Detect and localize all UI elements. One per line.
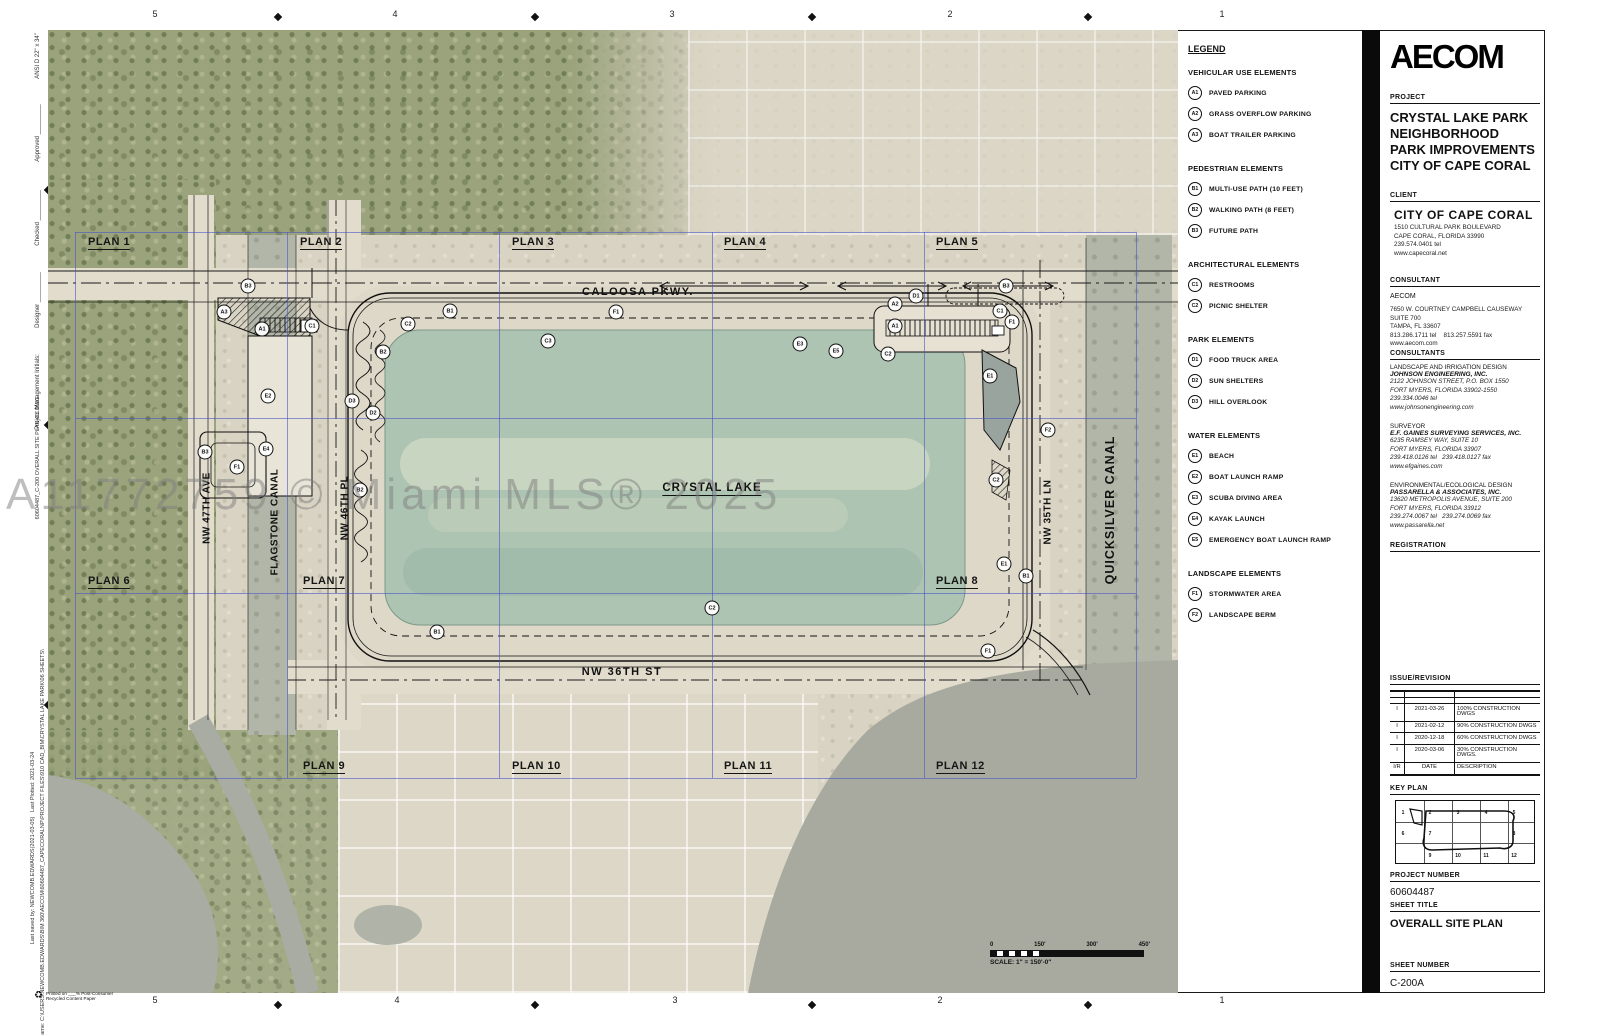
consultant-block: LANDSCAPE AND IRRIGATION DESIGN JOHNSON … (1390, 364, 1540, 412)
legend-panel: LEGEND VEHICULAR USE ELEMENTS A1 PAVED P… (1188, 44, 1356, 644)
consultants-label: CONSULTANTS (1390, 350, 1540, 360)
element-marker: F1 (1005, 315, 1020, 330)
legend-item: E3 SCUBA DIVING AREA (1188, 491, 1356, 505)
element-marker: B2 (376, 345, 391, 360)
element-marker: F1 (981, 644, 996, 659)
legend-item: D3 HILL OVERLOOK (1188, 395, 1356, 409)
margin-annotation: Last saved by: NEWCOMB.EDWARDS(2021-03-0… (30, 752, 36, 944)
legend-item: F2 LANDSCAPE BERM (1188, 608, 1356, 622)
plan-label: PLAN 6 (88, 575, 130, 589)
project-number-label: PROJECT NUMBER (1390, 872, 1540, 882)
legend-code-badge: A2 (1188, 107, 1202, 121)
street-label: QUICKSILVER CANAL (1103, 436, 1117, 585)
element-marker: F2 (1041, 423, 1056, 438)
sheet-number: C-200A (1390, 974, 1540, 989)
element-marker: D2 (366, 406, 381, 421)
element-marker: F1 (609, 305, 624, 320)
legend-code-badge: E3 (1188, 491, 1202, 505)
legend-item: E1 BEACH (1188, 449, 1356, 463)
legend-item: D1 FOOD TRUCK AREA (1188, 353, 1356, 367)
element-marker: B3 (198, 445, 213, 460)
legend-section-park: PARK ELEMENTS D1 FOOD TRUCK AREA D2 SUN … (1188, 335, 1356, 409)
element-marker: C2 (705, 601, 720, 616)
legend-item: D2 SUN SHELTERS (1188, 374, 1356, 388)
client-label: CLIENT (1390, 192, 1540, 202)
element-marker: A2 (888, 297, 903, 312)
scale-tick-label: 450' (1139, 942, 1150, 948)
element-marker: C1 (305, 319, 320, 334)
plan-label: PLAN 3 (512, 236, 554, 250)
key-plan-map: 123456789101112 (1395, 800, 1535, 864)
aecom-logo: AECOM (1390, 38, 1503, 75)
plan-label: PLAN 8 (936, 575, 978, 589)
element-marker: E1 (997, 557, 1012, 572)
element-marker: C2 (881, 347, 896, 362)
legend-item: B1 MULTI-USE PATH (10 FEET) (1188, 182, 1356, 196)
element-marker: B1 (430, 625, 445, 640)
legend-code-badge: E5 (1188, 533, 1202, 547)
element-marker: C3 (541, 334, 556, 349)
margin-annotation: Approved _________ (35, 104, 41, 161)
keyplan-number: 8 (1513, 831, 1516, 837)
consultant-address: 7650 W. COURTNEY CAMPBELL CAUSEWAY SUITE… (1390, 306, 1540, 349)
ruler-number: 1 (1219, 995, 1224, 1005)
legend-code-badge: B3 (1188, 224, 1202, 238)
legend-code-badge: D3 (1188, 395, 1202, 409)
street-label: NW 36TH ST (582, 666, 662, 678)
legend-code-badge: F1 (1188, 587, 1202, 601)
consultants-list: LANDSCAPE AND IRRIGATION DESIGN JOHNSON … (1390, 364, 1540, 541)
consultant-block: SURVEYOR E.F. GAINES SURVEYING SERVICES,… (1390, 423, 1540, 471)
plan-label: PLAN 12 (936, 760, 985, 774)
consultant-label: CONSULTANT (1390, 277, 1540, 287)
drawing-sheet: { "watermark": "A11772759 © Miami MLS® 2… (0, 0, 1600, 1035)
keyplan-number: 11 (1483, 853, 1488, 859)
legend-item: E4 KAYAK LAUNCH (1188, 512, 1356, 526)
legend-item: F1 STORMWATER AREA (1188, 587, 1356, 601)
project-number: 60604487 (1390, 883, 1540, 898)
revision-row: I 2021-02-12 90% CONSTRUCTION DWGS (1390, 722, 1540, 734)
mls-watermark: A11772759 © Miami MLS® 2025 (6, 470, 782, 520)
keyplan-number: 6 (1402, 831, 1405, 837)
titleblock-divider-bar (1362, 30, 1380, 993)
sheet-number-label: SHEET NUMBER (1390, 962, 1540, 972)
ruler-number: 4 (394, 995, 399, 1005)
plan-label: PLAN 5 (936, 236, 978, 250)
legend-code-badge: E4 (1188, 512, 1202, 526)
plan-label: PLAN 2 (300, 236, 342, 250)
street-label: CALOOSA PKWY. (582, 286, 694, 298)
legend-item: A3 BOAT TRAILER PARKING (1188, 128, 1356, 142)
keyplan-number: 1 (1402, 810, 1405, 816)
legend-code-badge: D1 (1188, 353, 1202, 367)
project-label: PROJECT (1390, 94, 1540, 104)
recycle-icon: ♻ (34, 990, 43, 1001)
sheet-title-label: SHEET TITLE (1390, 902, 1540, 912)
margin-annotation: Filename: C:\USERS\NEWCOMB.EDWARDS\BIM 3… (40, 649, 46, 1035)
legend-section-water: WATER ELEMENTS E1 BEACH E2 BOAT LAUNCH R… (1188, 431, 1356, 547)
legend-section-pedestrian: PEDESTRIAN ELEMENTS B1 MULTI-USE PATH (1… (1188, 164, 1356, 238)
element-marker: E2 (261, 389, 276, 404)
plan-label: PLAN 1 (88, 236, 130, 250)
element-marker: B1 (1019, 569, 1034, 584)
keyplan-number: 9 (1429, 853, 1432, 859)
legend-item: E5 EMERGENCY BOAT LAUNCH RAMP (1188, 533, 1356, 547)
keyplan-number: 2 (1429, 810, 1432, 816)
plan-label: PLAN 4 (724, 236, 766, 250)
legend-code-badge: A1 (1188, 86, 1202, 100)
key-plan-label: KEY PLAN (1390, 785, 1540, 795)
ruler-number: 3 (672, 995, 677, 1005)
plan-label: PLAN 9 (303, 760, 345, 774)
element-marker: E5 (829, 344, 844, 359)
ruler-number: 5 (152, 995, 157, 1005)
ruler-number: 2 (937, 995, 942, 1005)
element-marker: A1 (888, 319, 903, 334)
street-label: NW 35TH LN (1043, 480, 1054, 545)
title-block: AECOM PROJECT CRYSTAL LAKE PARK NEIGHBOR… (1390, 30, 1542, 993)
legend-item: A1 PAVED PARKING (1188, 86, 1356, 100)
plan-label: PLAN 10 (512, 760, 561, 774)
revision-table: I 2021-03-26 100% CONSTRUCTION DWGS I 20… (1390, 690, 1540, 776)
legend-item: B2 WALKING PATH (8 FEET) (1188, 203, 1356, 217)
registration-label: REGISTRATION (1390, 542, 1540, 552)
element-marker: B3 (241, 279, 256, 294)
keyplan-number: 5 (1513, 810, 1516, 816)
keyplan-number: 7 (1429, 831, 1432, 837)
consultant-block: ENVIRONMENTAL/ECOLOGICAL DESIGN PASSAREL… (1390, 482, 1540, 530)
client-name: CITY OF CAPE CORAL (1390, 208, 1544, 222)
ruler-number: 1 (1219, 9, 1224, 19)
legend-code-badge: D2 (1188, 374, 1202, 388)
legend-code-badge: A3 (1188, 128, 1202, 142)
legend-code-badge: F2 (1188, 608, 1202, 622)
consultant-name: AECOM (1390, 293, 1540, 300)
margin-annotation: Checked _________ (35, 190, 41, 245)
scale-tick-label: 300' (1086, 942, 1097, 948)
legend-item: C2 PICNIC SHELTER (1188, 299, 1356, 313)
sheet-title: OVERALL SITE PLAN (1390, 914, 1540, 930)
ruler-number: 3 (669, 9, 674, 19)
ruler-number: 4 (392, 9, 397, 19)
legend-item: A2 GRASS OVERFLOW PARKING (1188, 107, 1356, 121)
legend-code-badge: C1 (1188, 278, 1202, 292)
project-title: CRYSTAL LAKE PARK NEIGHBORHOOD PARK IMPR… (1390, 110, 1540, 173)
legend-code-badge: B2 (1188, 203, 1202, 217)
element-marker: E1 (983, 369, 998, 384)
margin-annotation: Designer _________ (35, 272, 41, 328)
legend-code-badge: B1 (1188, 182, 1202, 196)
issue-revision-label: ISSUE/REVISION (1390, 675, 1540, 685)
plan-label: PLAN 7 (303, 575, 345, 589)
ruler-number: 2 (947, 9, 952, 19)
keyplan-number: 4 (1485, 810, 1488, 816)
element-marker: E4 (259, 442, 274, 457)
scale-bar-graphic (990, 950, 1144, 957)
revision-row: I 2021-03-26 100% CONSTRUCTION DWGS (1390, 704, 1540, 722)
keyplan-number: 3 (1457, 810, 1460, 816)
keyplan-number: 10 (1455, 853, 1461, 859)
revision-row: I 2020-12-18 60% CONSTRUCTION DWGS (1390, 733, 1540, 745)
scale-bar: 0150'300'450' SCALE: 1" = 150'-0" (990, 942, 1150, 966)
legend-item: E2 BOAT LAUNCH RAMP (1188, 470, 1356, 484)
element-marker: C2 (989, 473, 1004, 488)
element-marker: D1 (909, 289, 924, 304)
keyplan-number: 12 (1511, 853, 1517, 859)
legend-section-vehicular: VEHICULAR USE ELEMENTS A1 PAVED PARKING … (1188, 68, 1356, 142)
element-marker: D3 (345, 394, 360, 409)
revision-row: I/R DATE DESCRIPTION (1390, 763, 1540, 775)
element-marker: B3 (999, 279, 1014, 294)
legend-item: B3 FUTURE PATH (1188, 224, 1356, 238)
revision-row: I 2020-03-06 30% CONSTRUCTION DWGS. (1390, 745, 1540, 763)
element-marker: B1 (443, 304, 458, 319)
margin-annotation: Project Management Initials: (35, 354, 41, 430)
scale-tick-label: 150' (1034, 942, 1045, 948)
legend-code-badge: E2 (1188, 470, 1202, 484)
client-address: 1510 CULTURAL PARK BOULEVARD CAPE CORAL,… (1390, 224, 1544, 258)
margin-annotation: ANSI D 22" x 34" (35, 33, 41, 79)
legend-title: LEGEND (1188, 44, 1356, 54)
legend-code-badge: C2 (1188, 299, 1202, 313)
scale-tick-label: 0 (990, 942, 993, 948)
element-marker: A3 (217, 305, 232, 320)
recycle-note: ♻ Printed on ___% Post-ConsumerRecycled … (34, 990, 113, 1001)
legend-section-architectural: ARCHITECTURAL ELEMENTS C1 RESTROOMS C2 P… (1188, 260, 1356, 313)
element-marker: E3 (793, 337, 808, 352)
legend-code-badge: E1 (1188, 449, 1202, 463)
legend-item: C1 RESTROOMS (1188, 278, 1356, 292)
ruler-number: 5 (152, 9, 157, 19)
legend-section-landscape: LANDSCAPE ELEMENTS F1 STORMWATER AREA F2… (1188, 569, 1356, 622)
scale-note: SCALE: 1" = 150'-0" (990, 959, 1150, 966)
element-marker: A1 (255, 322, 270, 337)
element-marker: C2 (401, 317, 416, 332)
plan-label: PLAN 11 (724, 760, 772, 774)
